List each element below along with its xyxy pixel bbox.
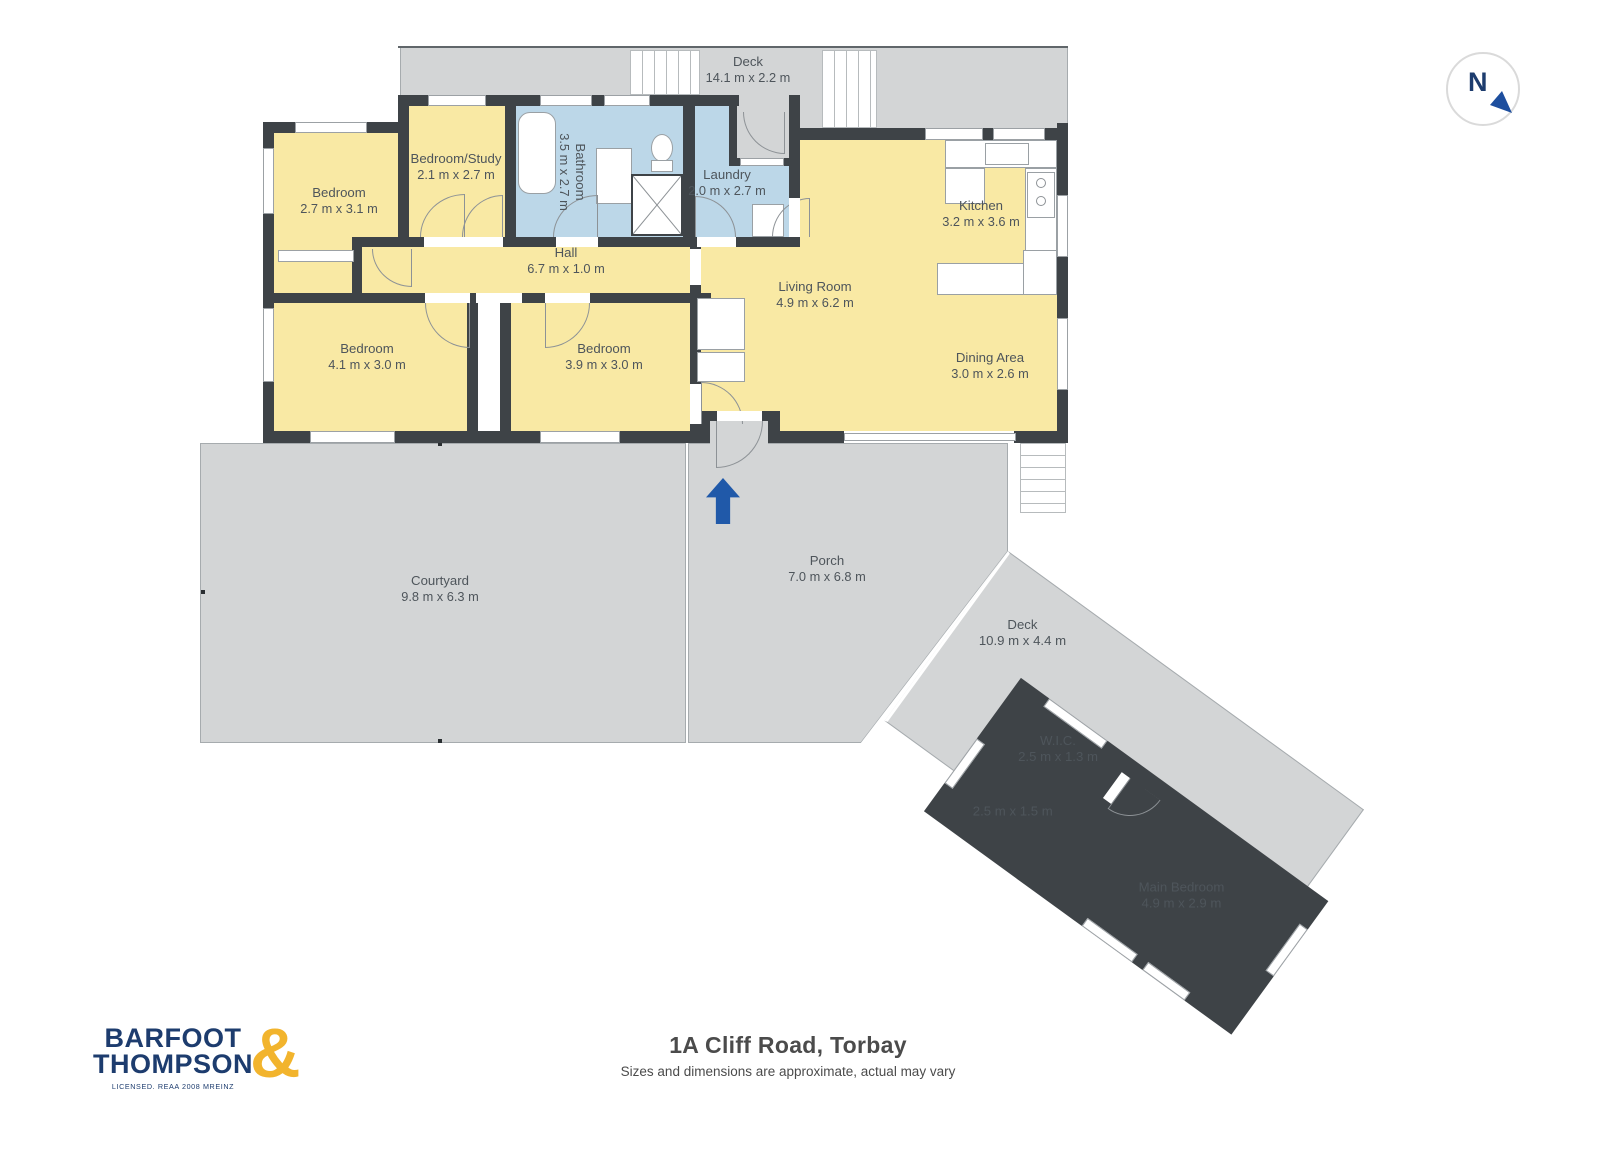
room-name: Deck — [979, 617, 1066, 633]
window — [540, 95, 592, 106]
room-dims: 2.5 m x 1.3 m — [1018, 749, 1098, 765]
room-name: Bathroom — [572, 133, 588, 211]
plan-title-block: 1A Cliff Road, Torbay Sizes and dimensio… — [621, 1032, 956, 1079]
deck-stairs-right — [822, 50, 877, 128]
room-label-bedroom-study: Bedroom/Study 2.1 m x 2.7 m — [411, 151, 502, 183]
agency-logo: BARFOOT THOMPSON LICENSED. REAA 2008 MRE… — [93, 1026, 301, 1091]
window — [1057, 195, 1068, 257]
window — [540, 431, 620, 443]
room-name: Laundry — [688, 167, 766, 183]
room-name: Main Bedroom — [1139, 880, 1225, 896]
room-dims: 4.9 m x 2.9 m — [1139, 896, 1225, 912]
door-opening — [464, 237, 503, 247]
wardrobe-sliding-doors — [278, 250, 354, 262]
door-opening — [424, 237, 465, 247]
wall — [1057, 123, 1068, 443]
door-opening — [476, 293, 522, 303]
window — [1057, 318, 1068, 390]
room-name: Hall — [527, 245, 605, 261]
room-label-bedroom-left: Bedroom 2.7 m x 3.1 m — [300, 185, 378, 217]
room-name: Bedroom — [328, 341, 406, 357]
shower — [631, 174, 683, 236]
room-dims: 6.7 m x 1.0 m — [527, 261, 605, 277]
door-opening — [425, 293, 470, 303]
room-name: Living Room — [776, 279, 854, 295]
room-dims: 7.0 m x 6.8 m — [788, 569, 866, 585]
shower-cross-lines — [633, 176, 681, 234]
room-label-dining-area: Dining Area 3.0 m x 2.6 m — [951, 350, 1029, 382]
room-dims: 3.9 m x 3.0 m — [565, 357, 643, 373]
window — [740, 158, 784, 166]
room-label-porch: Porch 7.0 m x 6.8 m — [788, 553, 866, 585]
agency-license-text: LICENSED. REAA 2008 MREINZ — [112, 1082, 234, 1091]
north-label: N — [1468, 67, 1488, 98]
room-label-kitchen: Kitchen 3.2 m x 3.6 m — [942, 198, 1020, 230]
room-dims: 2.7 m x 3.1 m — [300, 201, 378, 217]
north-arrow-icon — [1486, 87, 1516, 117]
wall — [352, 237, 362, 293]
porch-stairs — [1020, 443, 1066, 513]
door-opening — [697, 237, 736, 247]
room-dims: 3.5 m x 2.7 m — [556, 133, 572, 211]
disclaimer-text: Sizes and dimensions are approximate, ac… — [621, 1064, 956, 1079]
bathtub — [518, 112, 556, 194]
window — [263, 148, 274, 214]
door-opening — [717, 411, 762, 421]
room-dims: 9.8 m x 6.3 m — [401, 589, 479, 605]
kitchen-island — [1023, 250, 1057, 295]
room-name: Bedroom — [565, 341, 643, 357]
room-name: W.I.C. — [1018, 733, 1098, 749]
door-opening — [789, 198, 800, 237]
wall — [500, 293, 511, 443]
window — [604, 95, 650, 106]
room-label-hall: Hall 6.7 m x 1.0 m — [527, 245, 605, 277]
wall — [398, 95, 409, 247]
agency-ampersand: & — [250, 1026, 301, 1081]
deck-stairs-left — [630, 50, 700, 95]
toilet-tank — [651, 160, 673, 172]
closet-between-bedrooms — [478, 303, 500, 431]
wall — [729, 95, 737, 166]
toilet-bowl — [651, 134, 673, 162]
room-name: Deck — [706, 54, 791, 70]
stove-burner — [1036, 196, 1046, 206]
deck-top-boundary-line — [398, 46, 1068, 48]
room-label-wic: W.I.C. 2.5 m x 1.3 m — [1018, 733, 1098, 765]
room-label-laundry: Laundry 2.0 m x 2.7 m — [688, 167, 766, 199]
room-label-bathroom: Bathroom 3.5 m x 2.7 m — [556, 133, 588, 211]
room-dims: 3.0 m x 2.6 m — [951, 366, 1029, 382]
room-dims: 4.1 m x 3.0 m — [328, 357, 406, 373]
room-label-ensuite: 2.5 m x 1.5 m — [973, 804, 1053, 820]
agency-name-line2: THOMPSON — [93, 1052, 253, 1078]
hall-living-opening — [690, 249, 701, 285]
vanity — [596, 148, 632, 204]
window — [993, 128, 1045, 140]
room-dims: 14.1 m x 2.2 m — [706, 70, 791, 86]
window — [428, 95, 486, 106]
property-address: 1A Cliff Road, Torbay — [621, 1032, 956, 1059]
living-closet — [697, 352, 745, 382]
kitchen-sink — [985, 143, 1029, 165]
room-label-living-room: Living Room 4.9 m x 6.2 m — [776, 279, 854, 311]
floor-plan-canvas: Deck 10.9 m x 4.4 m W.I.C. 2.5 m x 1.3 m… — [0, 0, 1600, 1167]
window — [295, 122, 367, 133]
room-label-bedroom-right: Bedroom 3.9 m x 3.0 m — [565, 341, 643, 373]
room-name: Bedroom — [300, 185, 378, 201]
agency-logo-text: BARFOOT THOMPSON LICENSED. REAA 2008 MRE… — [93, 1026, 253, 1091]
room-name: Kitchen — [942, 198, 1020, 214]
living-closet — [697, 298, 745, 350]
stove-burner — [1036, 178, 1046, 188]
room-label-deck-top: Deck 14.1 m x 2.2 m — [706, 54, 791, 86]
boundary-mark — [438, 739, 442, 743]
room-label-main-bedroom: Main Bedroom 4.9 m x 2.9 m — [1139, 880, 1225, 912]
room-dims: 2.1 m x 2.7 m — [411, 167, 502, 183]
window — [263, 308, 274, 382]
boundary-mark — [201, 590, 205, 594]
window — [925, 128, 983, 140]
room-name: Porch — [788, 553, 866, 569]
room-name: Dining Area — [951, 350, 1029, 366]
room-dims: 2.0 m x 2.7 m — [688, 183, 766, 199]
room-dims: 4.9 m x 6.2 m — [776, 295, 854, 311]
door-opening — [690, 384, 701, 424]
room-label-deck-lower: Deck 10.9 m x 4.4 m — [979, 617, 1066, 649]
wall — [505, 95, 516, 247]
window — [310, 431, 395, 443]
room-dims: 3.2 m x 3.6 m — [942, 214, 1020, 230]
north-compass: N — [1446, 52, 1520, 126]
room-label-courtyard: Courtyard 9.8 m x 6.3 m — [401, 573, 479, 605]
sliding-door — [844, 433, 1016, 441]
room-label-bedroom-mid: Bedroom 4.1 m x 3.0 m — [328, 341, 406, 373]
wall — [768, 421, 780, 443]
room-dims: 10.9 m x 4.4 m — [979, 633, 1066, 649]
agency-name-line1: BARFOOT — [105, 1026, 242, 1052]
door-opening — [545, 293, 590, 303]
room-dims: 2.5 m x 1.5 m — [973, 804, 1053, 820]
room-name: Courtyard — [401, 573, 479, 589]
room-name: Bedroom/Study — [411, 151, 502, 167]
